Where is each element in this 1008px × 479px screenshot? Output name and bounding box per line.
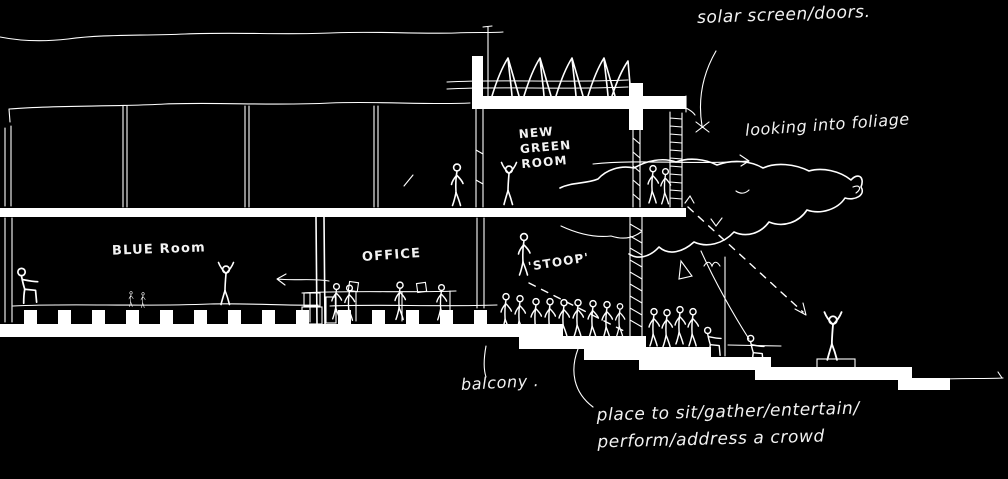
partition-wall [316, 217, 325, 324]
roofline [0, 32, 503, 41]
sketch-canvas: solar screen/doors. looking into foliage… [0, 0, 1008, 479]
crowd-figure [573, 300, 583, 337]
crowd-figure [688, 309, 698, 346]
label-new-green-room: NEW GREEN ROOM [518, 123, 573, 172]
bench-line [13, 304, 497, 306]
green-room-figure [502, 163, 517, 205]
leader-balcony [484, 346, 486, 377]
ground-line-right [945, 372, 1003, 379]
floor-posts [24, 310, 487, 324]
left-wall-upper [5, 126, 11, 206]
desk-monitor [416, 282, 426, 292]
upper-floor-figure [452, 164, 464, 205]
leader-solar-screen [696, 51, 716, 132]
foliage-cloud [560, 159, 862, 339]
blue-room-small-figure [129, 292, 133, 307]
ground-slab [0, 324, 563, 337]
stoop-door-jamb [477, 218, 484, 308]
crowd-figure [662, 310, 672, 347]
crowd-figure [602, 302, 612, 339]
tower-roof-slab [472, 96, 686, 109]
desk-monitor [348, 281, 358, 291]
mast [483, 26, 492, 96]
crowd-figure [616, 304, 625, 337]
crowd-figure [649, 309, 659, 346]
green-room-figure [648, 166, 658, 203]
upper-floor-slab [0, 208, 686, 217]
upper-floor-mark [404, 175, 413, 186]
label-place-to-sit: place to sit/gather/entertain/ perform/a… [596, 396, 860, 457]
speaker-figure [824, 312, 841, 360]
upper-ceiling-line [9, 102, 470, 122]
tower-left-column [476, 108, 483, 207]
left-building-section [0, 32, 686, 337]
shrub-triangle [679, 261, 720, 279]
upper-columns [123, 106, 378, 207]
sight-line-arrowhead [795, 303, 806, 315]
people-figures [18, 163, 862, 372]
blue-room-seated-figure [18, 268, 38, 303]
office-figure [395, 282, 405, 319]
crowd-figure [675, 307, 685, 344]
sawtooth-roof-fins [492, 58, 631, 96]
roof-beam-end [686, 96, 695, 115]
solar-screen-trellis [670, 112, 682, 207]
crowd-figure [588, 301, 598, 338]
arrow-to-blue-room [277, 274, 329, 285]
left-wall-lower [5, 218, 12, 322]
blue-room-performer-figure [219, 263, 234, 305]
green-room-figure [661, 169, 671, 204]
